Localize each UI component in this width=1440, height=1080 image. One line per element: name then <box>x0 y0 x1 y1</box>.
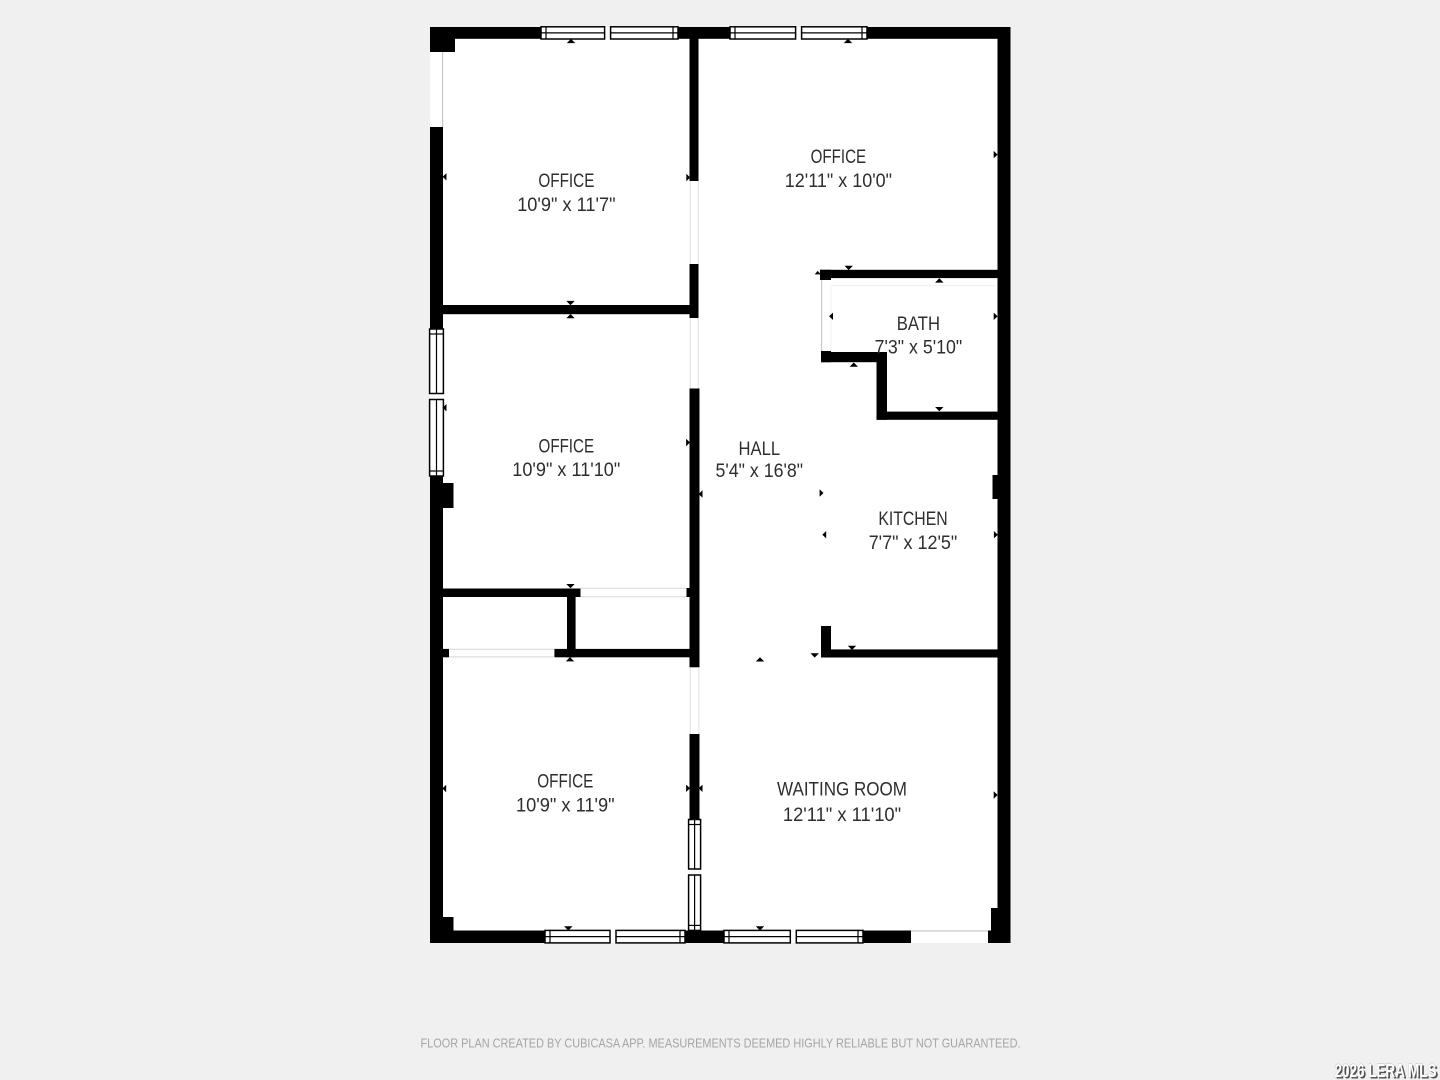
svg-text:10'9" x 11'7": 10'9" x 11'7" <box>517 194 615 216</box>
svg-text:OFFICE: OFFICE <box>539 436 595 457</box>
svg-text:BATH: BATH <box>897 314 940 335</box>
svg-text:OFFICE: OFFICE <box>537 771 593 792</box>
svg-text:KITCHEN: KITCHEN <box>878 509 947 530</box>
svg-text:12'11" x 10'0": 12'11" x 10'0" <box>785 170 892 192</box>
svg-text:7'7" x 12'5": 7'7" x 12'5" <box>869 532 958 554</box>
svg-text:HALL: HALL <box>739 439 781 460</box>
svg-text:12'11" x 11'10": 12'11" x 11'10" <box>783 804 901 826</box>
svg-text:OFFICE: OFFICE <box>538 171 594 192</box>
svg-text:OFFICE: OFFICE <box>811 147 867 168</box>
svg-text:7'3" x 5'10": 7'3" x 5'10" <box>875 337 963 359</box>
svg-text:2026 LERA MLS: 2026 LERA MLS <box>1335 1061 1437 1080</box>
svg-text:WAITING ROOM: WAITING ROOM <box>777 780 907 801</box>
svg-text:10'9" x 11'9": 10'9" x 11'9" <box>516 794 615 816</box>
svg-text:10'9" x 11'10": 10'9" x 11'10" <box>512 459 620 481</box>
svg-text:FLOOR PLAN CREATED BY CUBICASA: FLOOR PLAN CREATED BY CUBICASA APP. MEAS… <box>421 1036 1021 1051</box>
svg-text:5'4" x 16'8": 5'4" x 16'8" <box>716 460 804 482</box>
